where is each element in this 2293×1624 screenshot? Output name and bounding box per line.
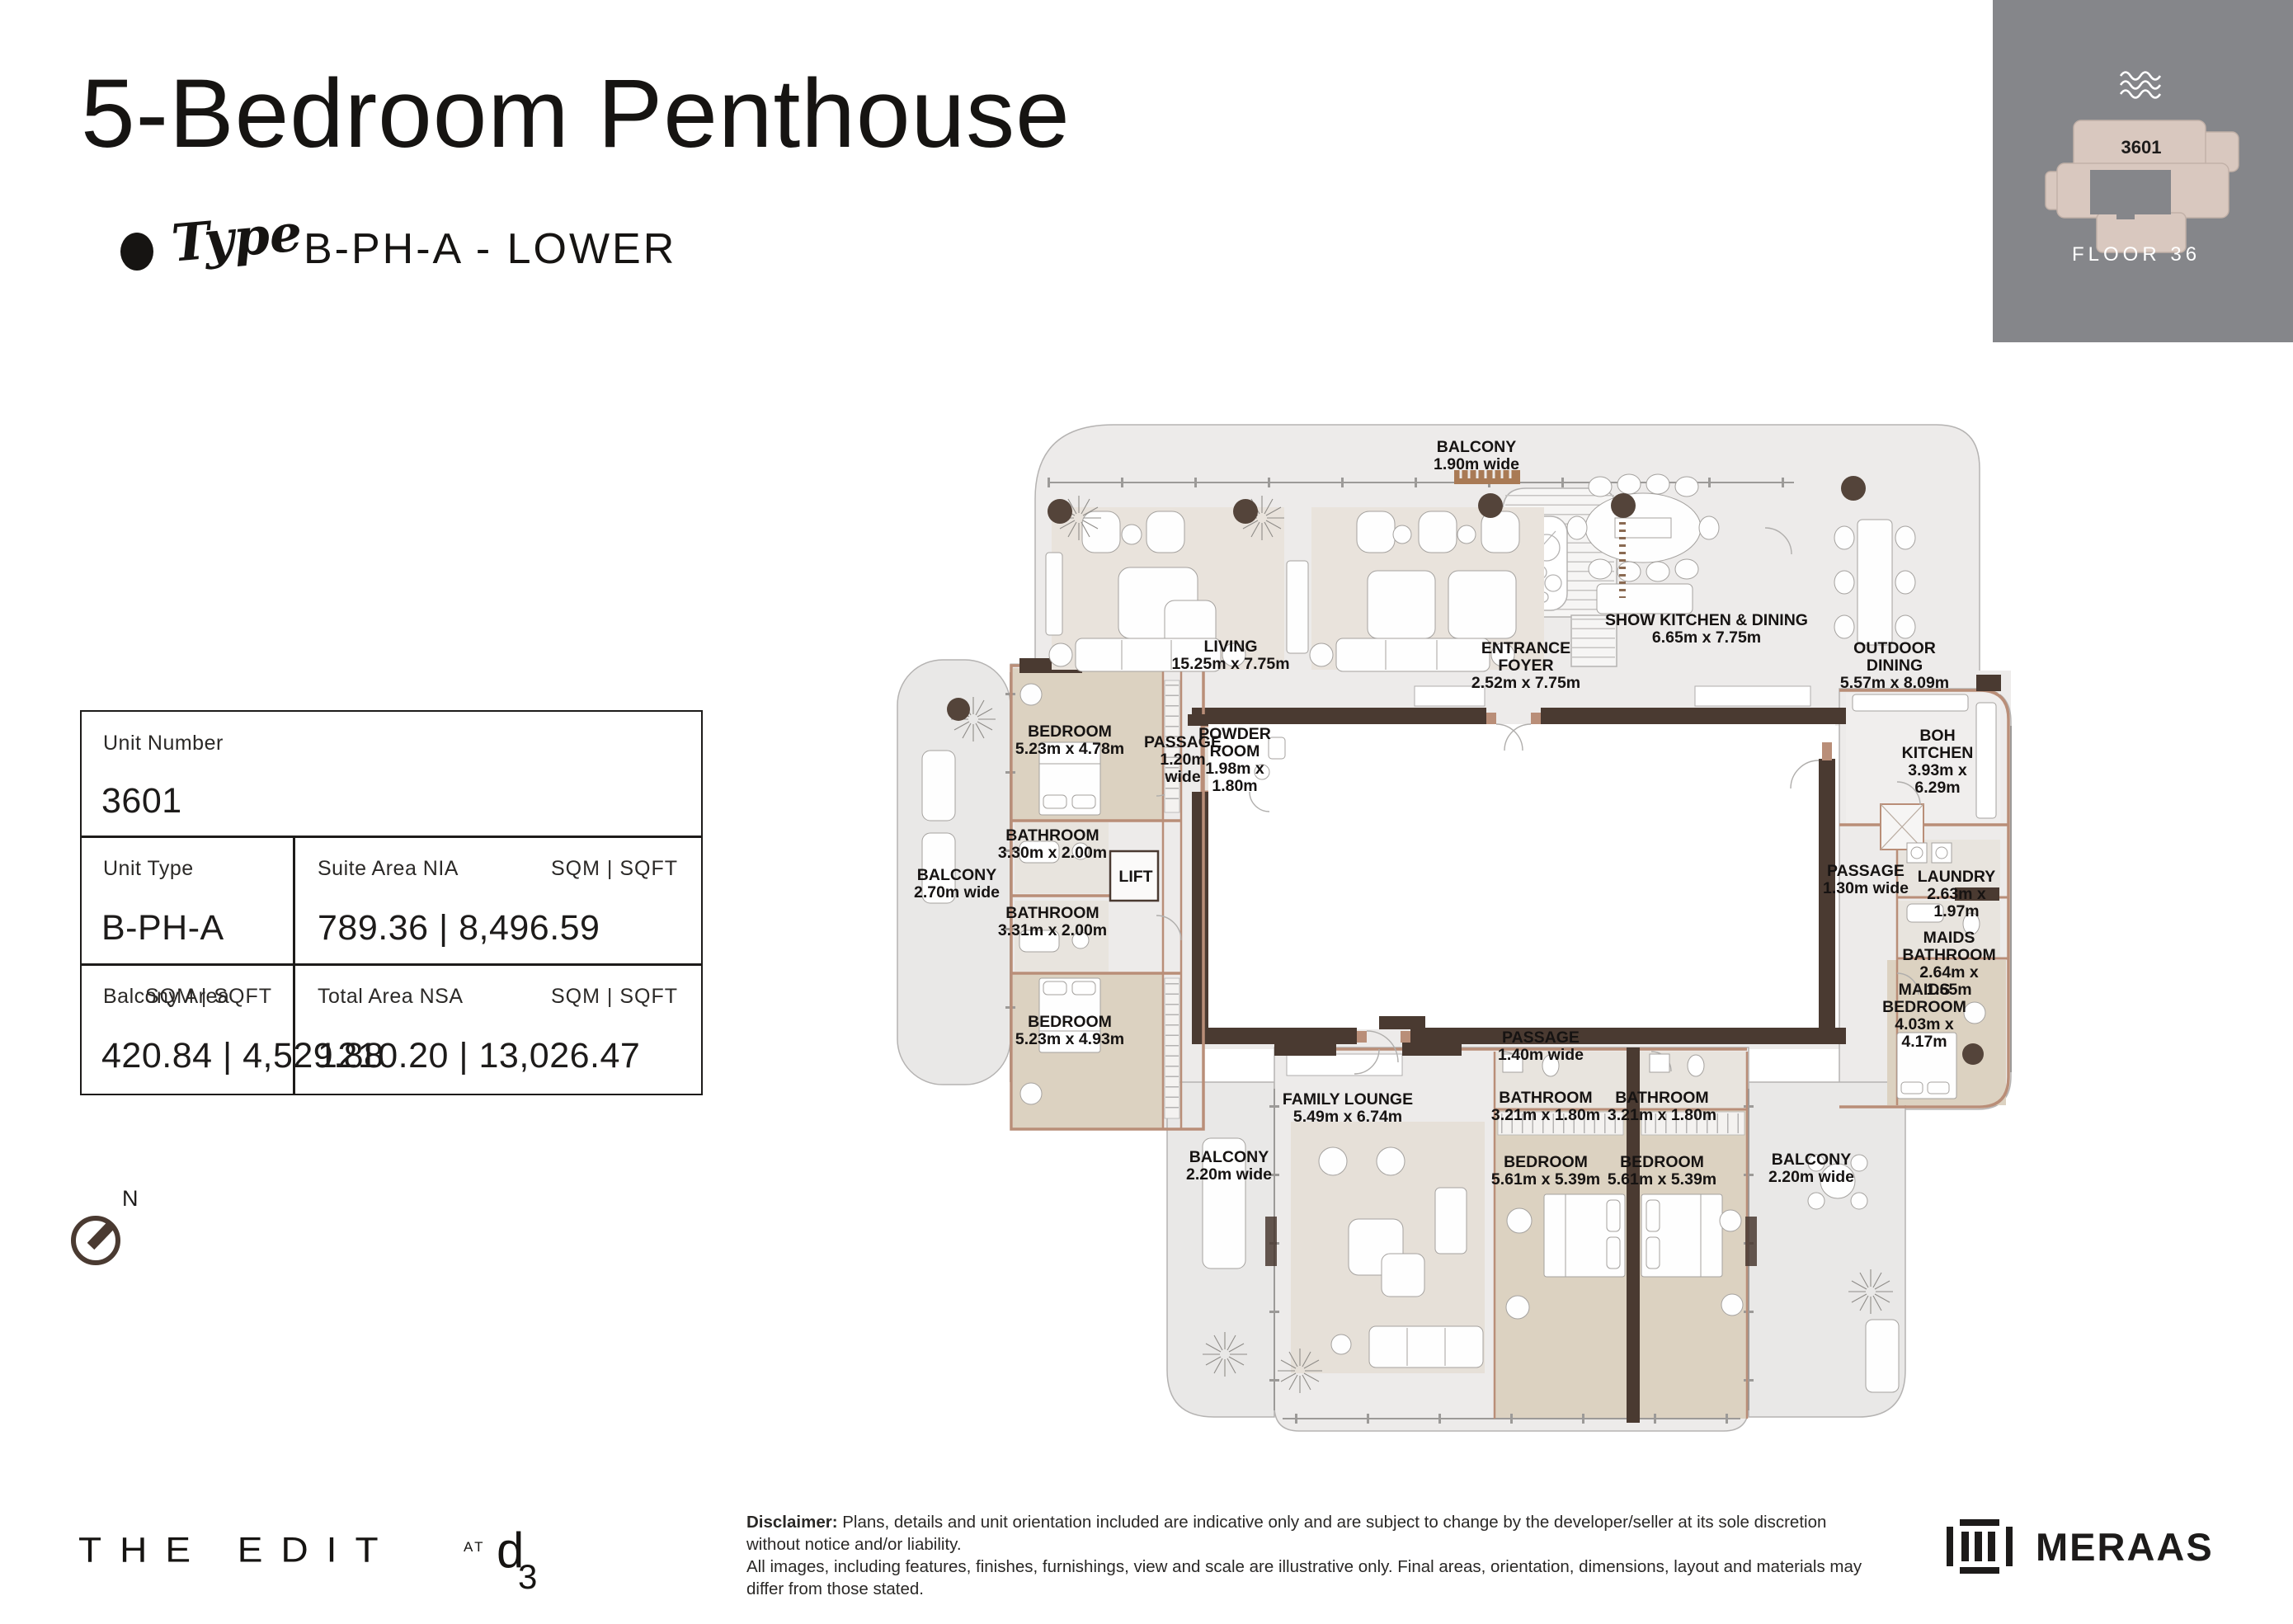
unit-number-label: Unit Number bbox=[103, 732, 224, 756]
compass-icon bbox=[63, 1186, 153, 1277]
room-label-lift: LIFT bbox=[1118, 868, 1152, 886]
plan-labels: BALCONY 1.90m wideLIVING 15.25m x 7.75mE… bbox=[874, 396, 2029, 1452]
disclaimer-label: Disclaimer: bbox=[746, 1513, 838, 1532]
room-label-bedroom-upper-left: BEDROOM 5.23m x 4.78m bbox=[1015, 723, 1124, 758]
unit-type-label: Unit Type bbox=[103, 857, 194, 881]
brochure-page: 5-Bedroom Penthouse Type B-PH-A - LOWER bbox=[0, 0, 2293, 1624]
unit-location-card: 3601 FLOOR 36 bbox=[1993, 0, 2293, 342]
svg-text:3: 3 bbox=[518, 1557, 537, 1596]
room-label-bathroom-321-left: BATHROOM 3.21m x 1.80m bbox=[1491, 1090, 1600, 1124]
suite-area-label: Suite Area NIA bbox=[318, 857, 459, 881]
balcony-area-units: SQM | SQFT bbox=[145, 985, 272, 1009]
unit-location-graphic: 3601 FLOOR 36 bbox=[1993, 0, 2293, 342]
unit-number-on-card: 3601 bbox=[2121, 137, 2162, 158]
total-area-units: SQM | SQFT bbox=[551, 985, 678, 1009]
unit-info-table: Unit Number 3601 Unit Type B-PH-A Suite … bbox=[80, 710, 703, 1095]
room-label-balcony-270: BALCONY 2.70m wide bbox=[914, 867, 1000, 901]
room-label-balcony-220-left: BALCONY 2.20m wide bbox=[1186, 1149, 1272, 1184]
floor-label: FLOOR 36 bbox=[2072, 243, 2201, 266]
bullet-icon bbox=[120, 233, 153, 271]
total-area-label: Total Area NSA bbox=[318, 985, 464, 1009]
room-label-bathroom-331: BATHROOM 3.31m x 2.00m bbox=[998, 905, 1107, 939]
room-label-bathroom-330: BATHROOM 3.30m x 2.00m bbox=[998, 827, 1107, 862]
room-label-entrance-foyer: ENTRANCE FOYER 2.52m x 7.75m bbox=[1471, 640, 1580, 692]
room-label-bedroom-561-right: BEDROOM 5.61m x 5.39m bbox=[1608, 1154, 1716, 1189]
suite-area-units: SQM | SQFT bbox=[551, 857, 678, 881]
the-edit-logo: THE EDIT bbox=[78, 1529, 397, 1570]
room-label-boh-kitchen: BOH KITCHEN 3.93m x 6.29m bbox=[1892, 727, 1984, 797]
suite-area-value: 789.36 | 8,496.59 bbox=[318, 908, 600, 949]
floor-plan: BALCONY 1.90m wideLIVING 15.25m x 7.75mE… bbox=[874, 396, 2029, 1452]
room-label-living: LIVING 15.25m x 7.75m bbox=[1171, 638, 1289, 673]
room-label-outdoor-dining: OUTDOOR DINING 5.57m x 8.09m bbox=[1828, 640, 1962, 692]
meraas-logo-mark bbox=[1947, 1519, 2013, 1574]
disclaimer-line1: Plans, details and unit orientation incl… bbox=[746, 1513, 1826, 1554]
disclaimer-line2: All images, including features, finishes… bbox=[746, 1557, 1862, 1598]
north-compass: N bbox=[63, 1186, 153, 1277]
room-label-balcony-220-right: BALCONY 2.20m wide bbox=[1768, 1151, 1854, 1186]
room-label-maids-bedroom: MAIDS BEDROOM 4.03m x 4.17m bbox=[1872, 981, 1977, 1051]
at-label: AT bbox=[464, 1539, 485, 1556]
room-label-laundry: LAUNDRY 2.63m x 1.97m bbox=[1918, 868, 1996, 920]
room-label-passage-130: PASSAGE 1.30m wide bbox=[1823, 863, 1909, 897]
meraas-logo-text: MERAAS bbox=[2036, 1524, 2214, 1570]
total-area-value: 1210.20 | 13,026.47 bbox=[318, 1036, 640, 1076]
room-label-bedroom-561-left: BEDROOM 5.61m x 5.39m bbox=[1491, 1154, 1600, 1189]
d3-logo: d 3 bbox=[492, 1516, 566, 1598]
compass-north-label: N bbox=[122, 1186, 139, 1212]
waves-icon bbox=[2121, 73, 2160, 98]
room-label-family-lounge: FAMILY LOUNGE 5.49m x 6.74m bbox=[1283, 1091, 1413, 1126]
page-title: 5-Bedroom Penthouse bbox=[81, 58, 1071, 170]
unit-type-subtitle: B-PH-A - LOWER bbox=[304, 224, 676, 274]
room-label-bathroom-321-right: BATHROOM 3.21m x 1.80m bbox=[1608, 1090, 1716, 1124]
room-label-show-kitchen-dining: SHOW KITCHEN & DINING 6.65m x 7.75m bbox=[1605, 612, 1808, 647]
room-label-bedroom-lower-left: BEDROOM 5.23m x 4.93m bbox=[1015, 1014, 1124, 1048]
room-label-balcony-top: BALCONY 1.90m wide bbox=[1434, 439, 1519, 473]
room-label-passage-140: PASSAGE 1.40m wide bbox=[1498, 1029, 1584, 1064]
room-label-powder-room: POWDER ROOM 1.98m x 1.80m bbox=[1198, 726, 1271, 795]
type-script-label: Type bbox=[169, 202, 304, 274]
disclaimer-text: Disclaimer: Plans, details and unit orie… bbox=[746, 1511, 1868, 1600]
unit-type-value: B-PH-A bbox=[101, 908, 224, 949]
unit-number-value: 3601 bbox=[101, 781, 182, 821]
